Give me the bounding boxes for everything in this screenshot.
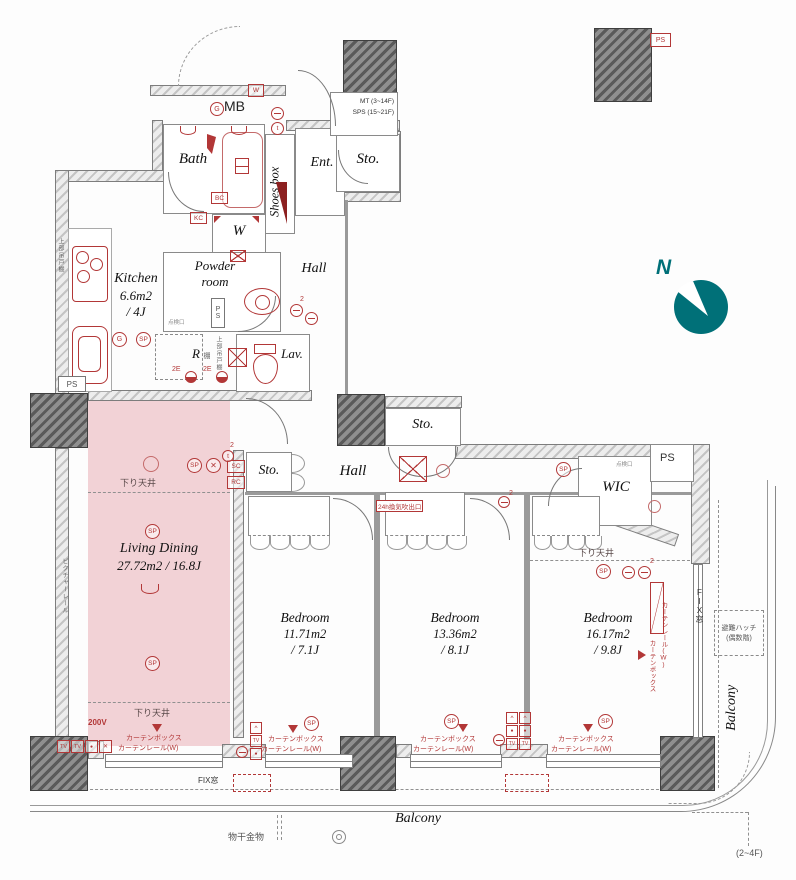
media-jack-mid-6: TV	[519, 738, 531, 750]
media-jack-mid-3: TV	[506, 738, 518, 750]
closet2-door-arc	[447, 536, 467, 550]
curtain-box-label-3: カーテンボックス	[420, 734, 476, 744]
rc-badge: RC	[227, 476, 245, 489]
evac-hatch-line1: 避難ハッチ	[722, 623, 757, 633]
bedroom1-label: Bedroom 11.71m2 / 7.1J	[255, 610, 355, 658]
wall-bedroom-divider-1	[374, 495, 380, 740]
bedroom1-outlet-low	[236, 746, 248, 758]
bedroom1-name: Bedroom	[255, 610, 355, 627]
floor-plan: 上部吊戸棚 上部吊戸棚 棚 点検口 PS Bath MB W G Shoes b…	[0, 0, 796, 880]
closet-bedroom2	[385, 492, 465, 536]
sp-circle-kitchen: SP	[136, 332, 151, 347]
bedroom2-outlet-count: 2	[509, 490, 513, 497]
mb-w-badge: W	[248, 84, 264, 97]
bedroom1-jack-3: ●	[250, 748, 262, 760]
wall-kitchen-top	[55, 170, 165, 182]
bedroom2-area: 13.36m2	[405, 627, 505, 643]
shower-head-left	[180, 126, 196, 135]
inspection-port-label-wic: 点検口	[616, 460, 633, 468]
bedroom2-tatami: / 8.1J	[405, 643, 505, 659]
hall-circle	[436, 464, 450, 478]
laundry-hardware-mark	[277, 815, 278, 840]
bathtub-drain	[235, 158, 249, 174]
entry-outlet-circle	[271, 107, 284, 120]
closet1-door-arc	[250, 536, 270, 550]
bedroom2-label: Bedroom 13.36m2 / 8.1J	[405, 610, 505, 658]
stove-burner	[77, 270, 90, 283]
curtain-box-label-4: カーテンボックス	[558, 734, 614, 744]
curtain-rail-label-2: カーテンレール(W)	[261, 744, 321, 754]
shower-head-right	[231, 126, 247, 135]
entrance-label: Ent.	[300, 154, 344, 172]
hall-outlet-1	[290, 304, 303, 317]
bedroom1-jack-2: TV	[250, 735, 262, 747]
curtain-pointer-4	[583, 724, 593, 732]
living-label: Living Dining 27.72m2 / 16.8J	[92, 540, 226, 574]
curtain-box-label-1: カーテンボックス	[126, 733, 182, 743]
compass	[672, 278, 730, 336]
curtain-rail-label-right: カーテンレール(W)	[658, 602, 668, 669]
curtain-box-label-2: カーテンボックス	[268, 734, 324, 744]
closet3-door-arc	[551, 536, 568, 550]
living-name: Living Dining	[92, 540, 226, 558]
bedroom3-name: Bedroom	[555, 610, 661, 627]
hall-hatch-box	[399, 456, 427, 482]
curtain-pointer-3	[458, 724, 468, 732]
wic-label: WIC	[592, 478, 640, 497]
shaft-line1: MT (3~14F)	[332, 96, 394, 107]
fix-window-label-bottom: FIX窓	[198, 775, 218, 786]
kitchen-sink-basin	[78, 336, 101, 372]
closet1-door-arc	[310, 536, 330, 550]
storage-hall-left-label: Sto.	[250, 462, 288, 479]
bedroom3-outlet-count: 2	[650, 558, 654, 565]
kc-badge: KC	[190, 212, 207, 224]
washer-outlet-box	[228, 348, 247, 367]
shoes-wedge	[276, 182, 287, 224]
count-living-top: 2	[230, 442, 234, 449]
wall-top-mb	[150, 85, 286, 96]
fix-window-label-right: FIX窓	[694, 588, 705, 623]
kitchen-name: Kitchen	[100, 270, 172, 288]
sp-circle-bottom-3: SP	[598, 714, 613, 729]
floor-range-leader-h	[692, 812, 748, 813]
floor-range-label: (2~4F)	[736, 848, 763, 858]
bedroom2-name: Bedroom	[405, 610, 505, 627]
outlet-lav	[216, 371, 228, 383]
wall-left-upper	[55, 170, 69, 396]
power-200v-label: 200V	[88, 718, 107, 727]
pillar-top-right	[594, 28, 652, 102]
down-ceiling-line-bedroom3	[530, 560, 690, 561]
bedroom1-tatami: / 7.1J	[255, 643, 355, 659]
ps-left-box: PS	[58, 376, 86, 392]
wall-living-divider	[233, 450, 244, 738]
window-bedroom3	[546, 754, 661, 768]
kitchen-area: 6.6m2	[100, 288, 172, 304]
compass-icon	[672, 278, 730, 336]
bc-badge: BC	[211, 192, 228, 204]
fix-window-dashed-2	[505, 774, 549, 792]
living-door-arc	[246, 398, 288, 444]
hall-outlet-2	[305, 312, 318, 325]
closet3-door-arc	[534, 536, 551, 550]
gas-meter-circle: G	[210, 102, 224, 116]
upper-cabinet-label-kitchen: 上部吊戸棚	[56, 238, 65, 273]
speaker-semi-living	[141, 584, 159, 594]
e2-label-r: 2E	[172, 366, 181, 373]
curtain-box-label-right: カーテンボックス	[646, 640, 656, 692]
wall-hall-right-thin	[345, 200, 348, 394]
entry-t-circle: t	[271, 122, 284, 135]
bath-label: Bath	[168, 150, 218, 169]
ps-top-right-badge: PS	[650, 33, 671, 47]
curtain-rail-label-1: カーテンレール(W)	[118, 743, 178, 753]
down-ceiling-label-bedroom3: 下り天井	[578, 546, 614, 559]
entrance-door-arc	[298, 70, 336, 126]
wall-shaft-top	[385, 396, 462, 408]
balcony-right-label: Balcony	[723, 685, 741, 731]
curtain-pointer-2	[288, 725, 298, 733]
bedroom3-outlet-2	[638, 566, 651, 579]
storage-entry-label: Sto.	[342, 150, 394, 169]
corridor-door-arc	[178, 26, 240, 86]
living-area: 27.72m2 / 16.8J	[92, 558, 226, 574]
hall-middle-label: Hall	[330, 462, 376, 481]
pillar-living-top-left	[30, 393, 88, 448]
evac-hatch-line2: (偶数階)	[726, 633, 752, 643]
vent-24h-label: 24h換気吹出口	[376, 500, 423, 512]
stove-burner	[76, 251, 89, 264]
outlet-r	[185, 371, 197, 383]
e2-label-lav: 2E	[203, 366, 212, 373]
lavatory-label: Lav.	[272, 346, 312, 362]
sc-badge: SC	[227, 460, 245, 473]
outlet-left-4: ✕	[99, 740, 112, 753]
sp-circle-living-top: SP	[187, 458, 202, 473]
down-ceiling-line-bottom	[88, 702, 230, 703]
balcony-bottom-label: Balcony	[380, 810, 456, 828]
tv-outlet-left-1: TV	[57, 740, 70, 753]
shaft-line2: SPS (15~21F)	[332, 107, 394, 118]
fix-window-dashed-1	[233, 774, 271, 792]
laundry-label: W	[227, 222, 251, 241]
light-circle-living-top: ✕	[206, 458, 221, 473]
refrigerator-label: R	[186, 346, 206, 362]
g-circle-kitchen: G	[112, 332, 127, 347]
closet1-door-arc	[290, 536, 310, 550]
laundry-corner-mark	[252, 216, 259, 223]
kitchen-tatami: / 4J	[100, 304, 172, 320]
wall-bedroom-divider-2	[524, 495, 530, 740]
laundry-hardware-label: 物干金物	[228, 830, 264, 843]
media-outlet-mid	[493, 734, 505, 746]
ceiling-light-circle	[143, 456, 159, 472]
compass-n-label: N	[656, 256, 671, 280]
closet-bedroom1	[248, 496, 330, 536]
media-jack-mid-2: ●	[506, 725, 518, 737]
bedroom1-area: 11.71m2	[255, 627, 355, 643]
picture-rail-label: ピクチャーレール	[60, 558, 69, 614]
storage-hall-top-label: Sto.	[398, 416, 448, 434]
bedroom1-jack-1: ^	[250, 722, 262, 734]
curtain-rail-label-4: カーテンレール(W)	[551, 744, 611, 754]
shoes-box-label-wrap: Shoes box	[252, 144, 298, 240]
shaft-label: MT (3~14F) SPS (15~21F)	[332, 96, 394, 118]
bedroom3-outlet-1	[622, 566, 635, 579]
storage-hall-left-accordion	[292, 454, 305, 473]
mb-label: MB	[224, 98, 245, 114]
media-jack-mid-5: ●	[519, 725, 531, 737]
window-living-left	[105, 754, 223, 768]
closet1-door-arc	[270, 536, 290, 550]
curtain-pointer-1	[152, 724, 162, 732]
sp-circle-living-low: SP	[145, 656, 160, 671]
t-circle-living-top: t	[222, 450, 234, 462]
down-ceiling-label-living-top: 下り天井	[120, 476, 156, 489]
curtain-pointer-right	[638, 650, 646, 660]
sp-circle-living-mid: SP	[145, 524, 160, 539]
pillar-shaft-mid	[337, 394, 385, 446]
balcony-right-label-wrap: Balcony	[706, 648, 758, 768]
laundry-corner-mark	[214, 216, 221, 223]
upper-cabinet-label-lav: 上部吊戸棚	[214, 336, 223, 371]
media-jack-mid-4: ^	[519, 712, 531, 724]
curtain-rail-label-3: カーテンレール(W)	[413, 744, 473, 754]
hall-outlet-count: 2	[300, 296, 304, 303]
hall-upper-label: Hall	[292, 260, 336, 278]
laundry-hardware-mark	[281, 815, 282, 840]
closet2-door-arc	[407, 536, 427, 550]
balcony-drain	[332, 830, 346, 844]
ps-right-label: PS	[660, 452, 675, 464]
sp-circle-bottom-1: SP	[304, 716, 319, 731]
down-ceiling-label-living-bottom: 下り天井	[134, 706, 170, 719]
tv-outlet-left-2: TV	[71, 740, 84, 753]
floor-range-leader-v	[748, 812, 749, 846]
powder-line2: room	[183, 274, 247, 290]
powder-label: Powder room	[183, 258, 247, 291]
sp-circle-wic: SP	[556, 462, 571, 477]
window-bedroom2	[410, 754, 502, 768]
closet2-door-arc	[387, 536, 407, 550]
media-jack-mid-1: ^	[506, 712, 518, 724]
sp-circle-bedroom3: SP	[596, 564, 611, 579]
window-living-right	[265, 754, 353, 768]
doorbell-box	[230, 250, 246, 262]
bedroom2-outlet	[498, 496, 510, 508]
closet2-door-arc	[427, 536, 447, 550]
powder-sink-bowl	[255, 295, 270, 310]
outlet-left-3: ●	[85, 740, 98, 753]
down-ceiling-line-top	[88, 492, 230, 493]
ps-powder-box: PS	[211, 298, 225, 328]
wic-circle	[648, 500, 661, 513]
kitchen-label: Kitchen 6.6m2 / 4J	[100, 270, 172, 320]
sp-circle-bottom-2: SP	[444, 714, 459, 729]
